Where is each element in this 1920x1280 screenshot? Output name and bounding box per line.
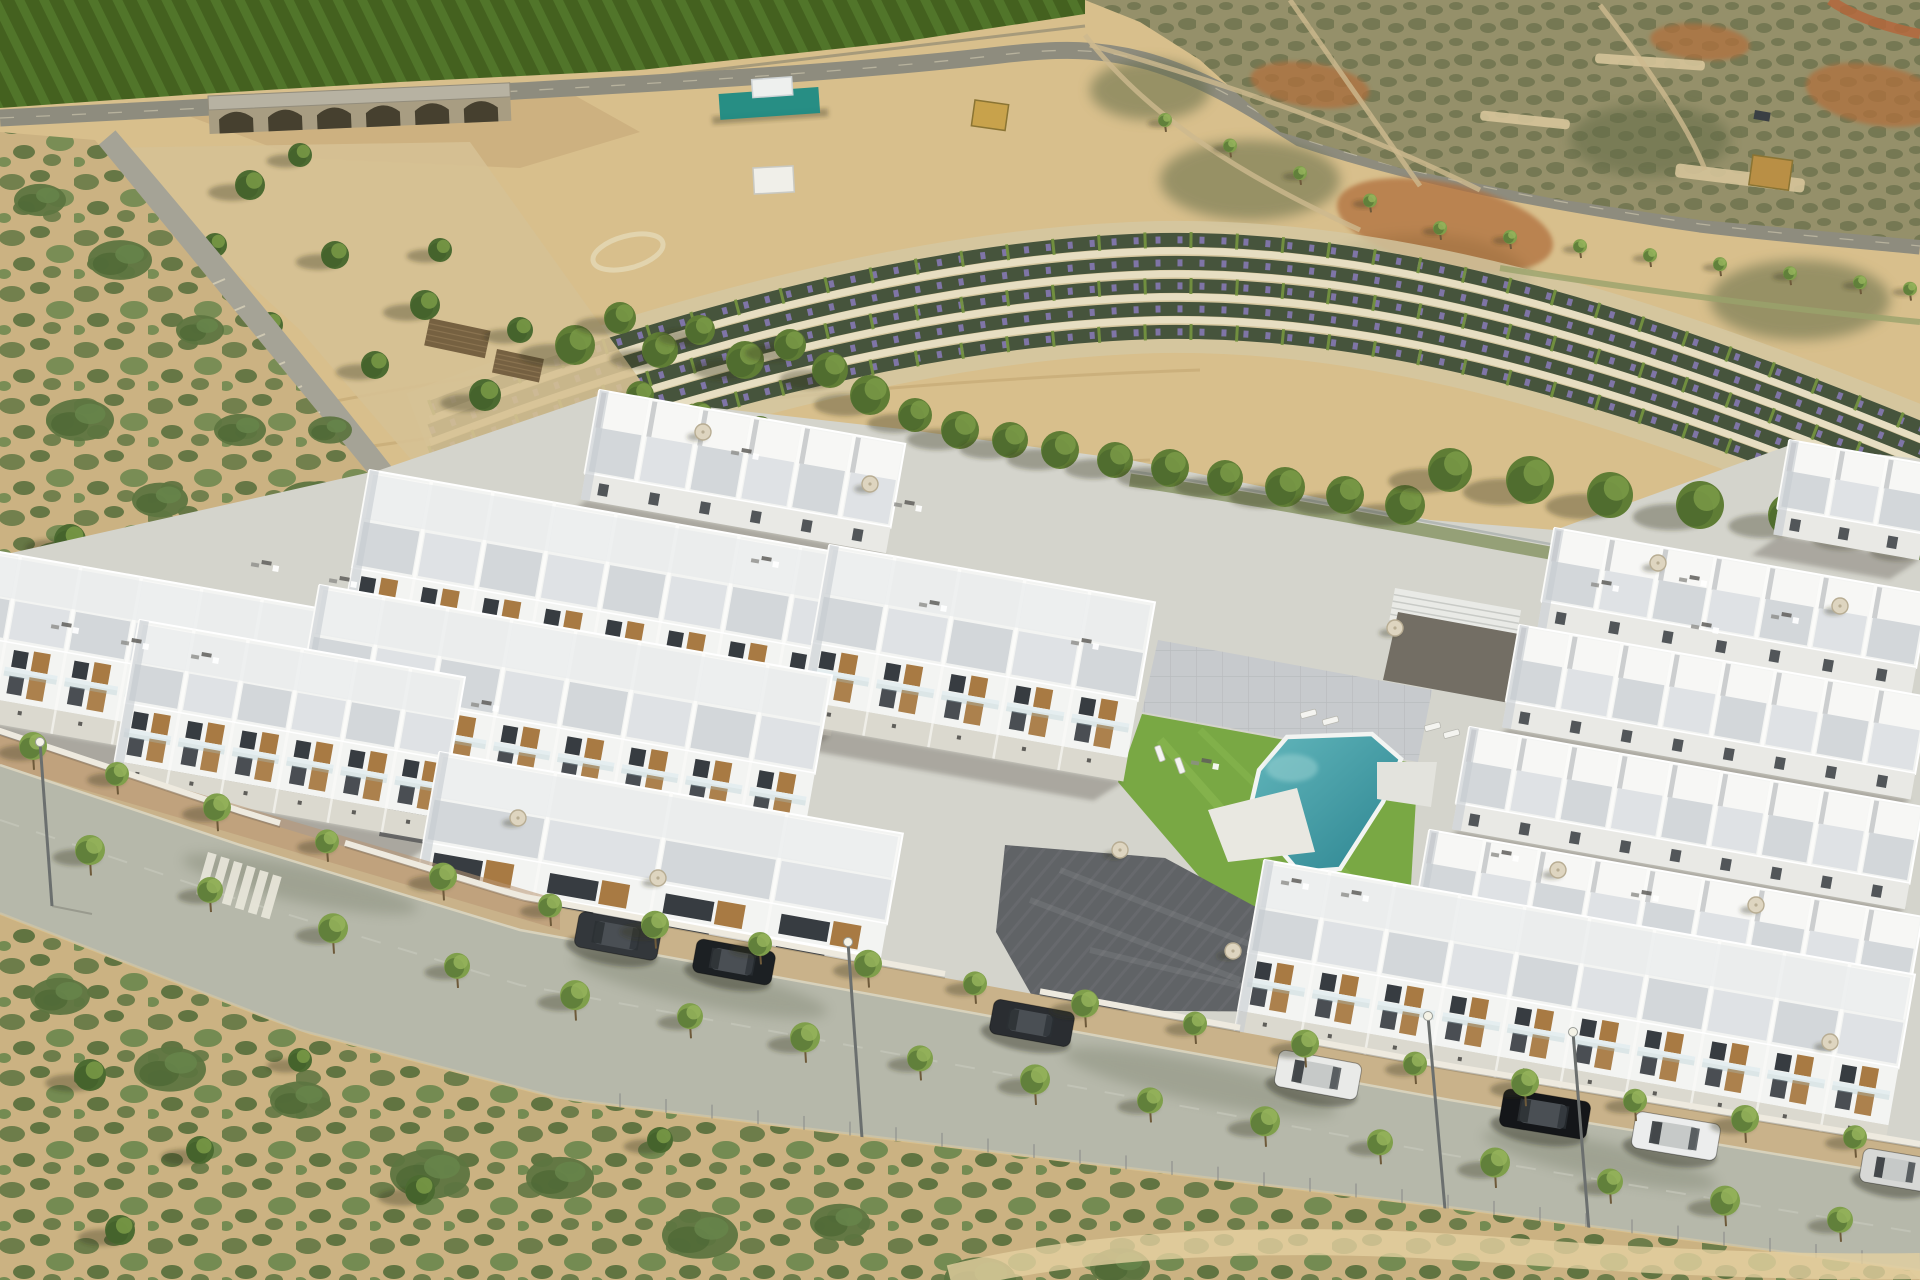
window (1519, 822, 1531, 836)
small-hut (1749, 155, 1793, 190)
window (1838, 527, 1850, 541)
shrub-mass (1570, 104, 1730, 176)
window (501, 725, 519, 744)
wood-panel (367, 751, 387, 774)
window (1579, 1019, 1597, 1038)
window (1715, 640, 1727, 654)
patio-furniture (892, 724, 897, 729)
roof-terrace (1863, 832, 1914, 880)
window (1468, 813, 1480, 827)
window (1449, 996, 1467, 1015)
wood-panel (776, 772, 796, 795)
wood-panel (968, 676, 988, 699)
bush-icon (88, 240, 152, 280)
patio-furniture (1717, 1103, 1722, 1108)
window (693, 759, 711, 778)
bush-icon (662, 1212, 738, 1259)
window (818, 651, 836, 670)
window (1319, 973, 1337, 992)
window (185, 721, 203, 740)
bush-icon (132, 483, 188, 518)
aerial-photo (0, 0, 1920, 1280)
patio-furniture (1022, 747, 1027, 752)
window (1769, 649, 1781, 663)
patio-furniture (1327, 1034, 1332, 1039)
roof-terrace (1762, 815, 1813, 863)
window (1886, 536, 1898, 550)
patio-furniture (1262, 1022, 1267, 1027)
patio-furniture (1087, 758, 1092, 763)
roof-terrace (741, 454, 794, 506)
window (402, 759, 420, 778)
window (948, 674, 966, 693)
window (1822, 659, 1834, 673)
roof-terrace (1611, 788, 1662, 836)
wood-panel (1033, 687, 1053, 710)
roof-terrace (792, 463, 845, 515)
wood-panel (1794, 1054, 1814, 1077)
window (597, 483, 609, 497)
window (1621, 729, 1633, 743)
window (1774, 756, 1786, 770)
window (1608, 621, 1620, 635)
shrub-mass (1090, 60, 1210, 120)
bush-icon (810, 1204, 870, 1241)
window (1723, 747, 1735, 761)
window (1078, 697, 1096, 716)
patio-furniture (957, 735, 962, 740)
wood-panel (1274, 963, 1294, 986)
window (852, 528, 864, 542)
window (1789, 518, 1801, 532)
bush-icon (46, 399, 114, 441)
roof-terrace (1812, 823, 1863, 871)
roof-terrace (1712, 806, 1763, 854)
wood-panel (903, 664, 923, 687)
roof-terrace (1816, 713, 1868, 761)
window (648, 492, 660, 506)
wood-panel (584, 738, 604, 761)
wood-panel (151, 713, 171, 736)
bush-icon (308, 416, 352, 443)
wood-panel (1729, 1043, 1749, 1066)
window (131, 711, 149, 730)
window (1570, 720, 1582, 734)
roof-terrace (1599, 570, 1653, 617)
patio-furniture (1782, 1114, 1787, 1119)
roof-terrace (1612, 677, 1664, 725)
roof-terrace (1661, 797, 1712, 845)
bush-icon (526, 1157, 594, 1199)
window (1662, 630, 1674, 644)
window (801, 519, 813, 533)
window (11, 650, 29, 669)
window (1720, 858, 1732, 872)
patio-furniture (1652, 1091, 1657, 1096)
bush-icon (14, 184, 66, 216)
window (1644, 1030, 1662, 1049)
window (1839, 1064, 1857, 1083)
window (348, 750, 366, 769)
roof-terrace (1765, 704, 1817, 752)
window (629, 748, 647, 767)
roof-terrace (1878, 488, 1920, 531)
wood-panel (1404, 986, 1424, 1009)
window (565, 736, 583, 755)
patio-furniture (297, 800, 302, 805)
roof-terrace (1830, 479, 1879, 522)
patio-furniture (78, 721, 83, 726)
window (72, 661, 90, 680)
small-hut (971, 100, 1008, 130)
window (757, 770, 775, 789)
roof-terrace (1868, 722, 1920, 770)
wood-panel (712, 760, 732, 783)
patio-furniture (1392, 1045, 1397, 1050)
window (1774, 1053, 1792, 1072)
window (1514, 1007, 1532, 1026)
window (1569, 831, 1581, 845)
wood-panel (1599, 1020, 1619, 1043)
bush-icon (30, 978, 90, 1015)
wood-panel (313, 742, 333, 765)
patio-furniture (1457, 1057, 1462, 1062)
window (1770, 867, 1782, 881)
park-shed (753, 166, 794, 194)
roof-terrace (1714, 695, 1766, 743)
patio-furniture (1587, 1080, 1592, 1085)
wood-panel (598, 880, 630, 909)
window (1384, 984, 1402, 1003)
wood-panel (1098, 698, 1118, 721)
window (1555, 612, 1567, 626)
window (1875, 668, 1887, 682)
pool-shallow-end (1266, 754, 1318, 782)
pool-platform (1377, 762, 1437, 807)
window (883, 663, 901, 682)
window (1825, 765, 1837, 779)
roof-terrace (1663, 686, 1715, 734)
window (1871, 884, 1883, 898)
wood-panel (91, 662, 111, 685)
wood-panel (1469, 997, 1489, 1020)
wood-panel (1339, 974, 1359, 997)
window (699, 501, 711, 515)
patio-furniture (17, 711, 22, 716)
wood-panel (648, 749, 668, 772)
bush-icon (270, 1081, 330, 1118)
patio-furniture (189, 781, 194, 786)
patio-furniture (406, 819, 411, 824)
window (1619, 840, 1631, 854)
aerial-photo-stage (0, 0, 1920, 1280)
roof-terrace (1510, 770, 1561, 818)
window (1876, 774, 1888, 788)
wood-panel (838, 653, 858, 676)
roof-terrace (1561, 668, 1613, 716)
window (1709, 1041, 1727, 1060)
wood-panel (456, 715, 476, 738)
wood-panel (1534, 1009, 1554, 1032)
window (1518, 711, 1530, 725)
window (1013, 686, 1031, 705)
wood-panel (259, 732, 279, 755)
wood-panel (520, 726, 540, 749)
window (1254, 961, 1272, 980)
window (239, 730, 257, 749)
wood-panel (1859, 1066, 1879, 1089)
patio-furniture (352, 810, 357, 815)
patio-furniture (827, 712, 832, 717)
roof-terrace (1813, 608, 1867, 655)
bush-icon (134, 1047, 206, 1092)
bush-icon (176, 315, 224, 345)
wood-panel (205, 722, 225, 745)
window (1672, 738, 1684, 752)
window (750, 510, 762, 524)
bush-icon (214, 414, 266, 446)
window (1670, 849, 1682, 863)
patio-furniture (243, 791, 248, 796)
roof-terrace (1652, 580, 1706, 627)
roof-terrace (1866, 618, 1920, 665)
roof-terrace (1759, 599, 1813, 646)
window (1821, 875, 1833, 889)
roof-terrace (1561, 779, 1612, 827)
window (294, 740, 312, 759)
roof-terrace (640, 436, 693, 488)
wood-panel (31, 651, 51, 674)
wood-panel (714, 901, 746, 930)
wood-panel (1664, 1031, 1684, 1054)
